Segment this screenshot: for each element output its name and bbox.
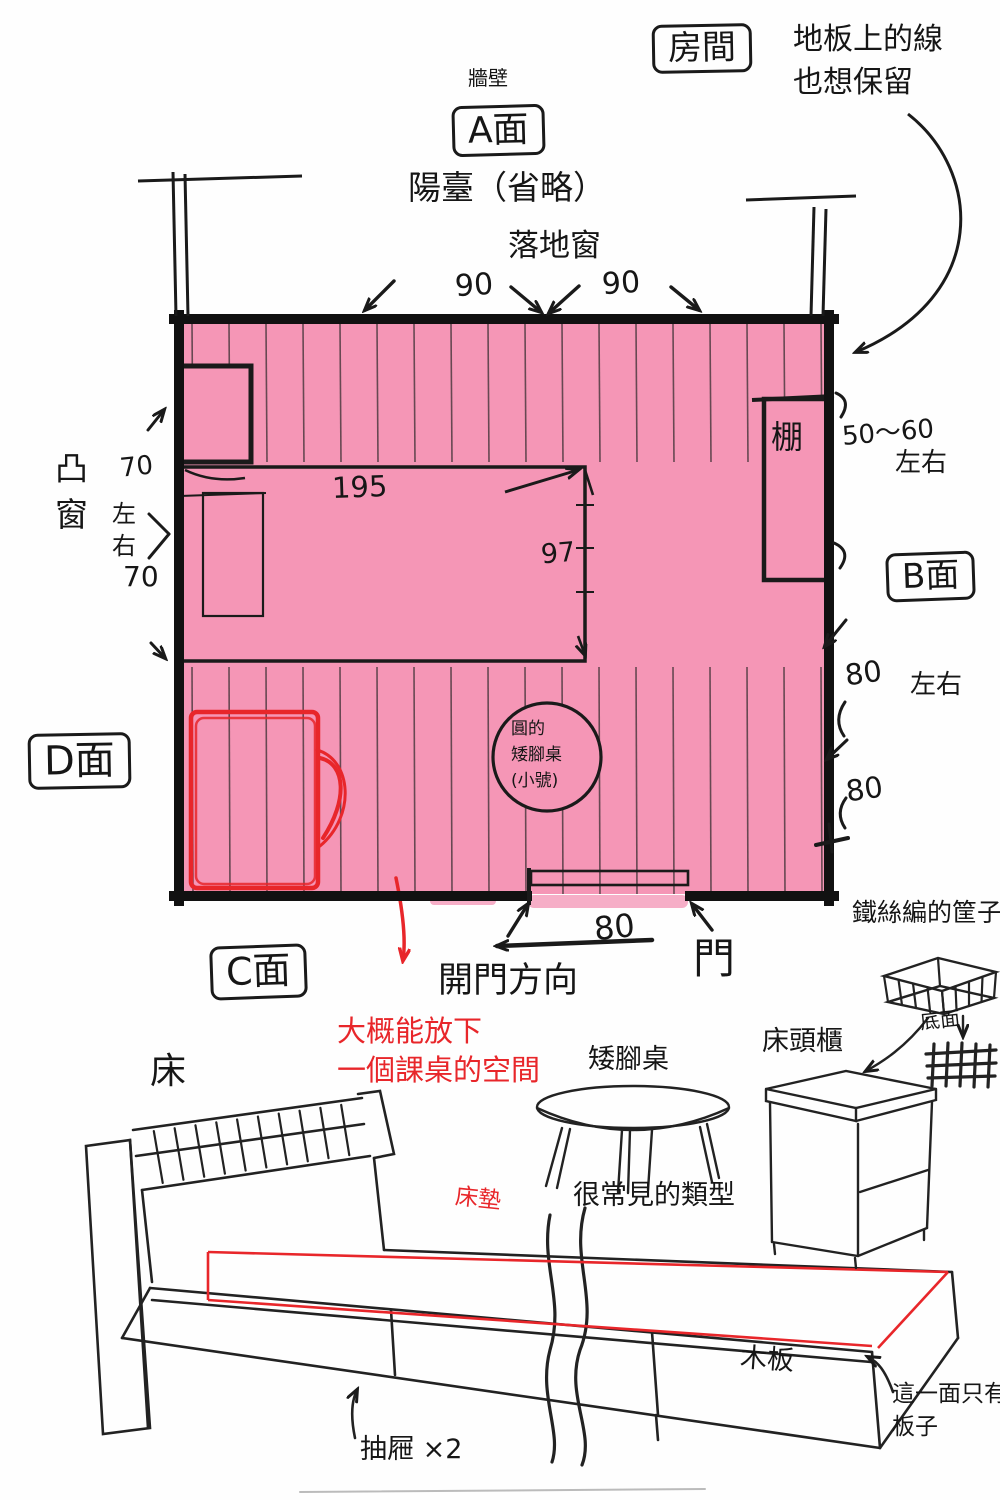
basket-bottom-grid [926, 1043, 996, 1087]
board-note-line2: 板子 [892, 1411, 1000, 1444]
side-b-label: B面 [901, 555, 960, 597]
desk-note: 大概能放下 一個課桌的空間 [337, 1012, 540, 1090]
low-table-sketch [537, 1086, 729, 1193]
floor-note-arrow [856, 114, 961, 352]
bay-lr-label: 左右 [112, 498, 140, 562]
side-c-label: C面 [225, 948, 291, 994]
window-dimension-marks [365, 281, 699, 313]
basket-bottom-label: 底面 [919, 1006, 961, 1034]
board-label: 木板 [739, 1342, 795, 1378]
balcony-label: 陽臺（省略） [408, 168, 606, 208]
b-lr-label: 左右 [910, 670, 962, 701]
nightstand-label: 床頭櫃 [762, 1026, 843, 1058]
b-dim-1: 80 [843, 654, 884, 694]
side-a-label: A面 [467, 109, 529, 152]
window-dim-2: 90 [601, 265, 642, 304]
side-a-box: A面 [451, 104, 545, 158]
basket-label: 鐵絲編的筐子 [852, 898, 1000, 928]
desk-note-line2: 一個課桌的空間 [337, 1051, 540, 1090]
window-dim-1: 90 [454, 267, 495, 306]
side-d-label: D面 [44, 737, 116, 784]
bed-width-dim: 195 [331, 469, 388, 506]
mattress-label: 床墊 [454, 1184, 503, 1216]
hand-drawn-room-plan: 房間 地板上的線 也想保留 牆壁 A面 陽臺（省略） 落地窗 90 90 凸窗 … [0, 0, 1000, 1500]
shelf-label: 棚 [771, 418, 803, 456]
shelf-lr-label: 左右 [895, 448, 947, 479]
table-note-label: 很常見的類型 [573, 1180, 735, 1212]
plan-closet-rect [181, 366, 251, 462]
bay-dim-2: 70 [123, 560, 159, 594]
bed-sketch [86, 1091, 958, 1492]
floor-note-line1: 地板上的線 [793, 18, 943, 61]
door-pink-spill [528, 895, 688, 908]
low-table-label: 矮腳桌 [588, 1044, 669, 1076]
round-table-line2: 矮腳桌 [511, 742, 562, 768]
door-label: 門 [693, 934, 735, 984]
board-note-line1: 這一面只有 [892, 1378, 1000, 1411]
nightstand-sketch [766, 1071, 936, 1268]
floor-plan-drawing [0, 0, 1000, 1500]
bay-dim-1: 70 [118, 450, 154, 484]
floor-note: 地板上的線 也想保留 [793, 18, 943, 104]
desk-note-line1: 大概能放下 [337, 1012, 540, 1051]
basket-to-nightstand-arrow [866, 1018, 928, 1071]
french-window-label: 落地窗 [508, 228, 601, 265]
b-dim-2: 80 [844, 770, 885, 810]
room-title-box: 房間 [652, 23, 753, 74]
bay-window-marks [148, 410, 169, 658]
door-direction-label: 開門方向 [438, 960, 578, 1002]
bed-label: 床 [150, 1050, 186, 1093]
room-title: 房間 [668, 27, 737, 68]
drawers-arrow [352, 1390, 357, 1438]
board-note: 這一面只有 板子 [892, 1378, 1000, 1444]
bed-depth-dim: 97 [540, 537, 577, 572]
bay-window-label: 凸窗 [55, 446, 93, 538]
round-table-line3: (小號) [511, 768, 562, 794]
side-b-box: B面 [885, 550, 976, 602]
round-table-note: 圓的 矮腳桌 (小號) [511, 716, 562, 794]
side-d-box: D面 [28, 732, 132, 790]
drawers-label: 抽屜 ×2 [360, 1434, 462, 1466]
round-table-line1: 圓的 [511, 716, 562, 742]
wall-label: 牆壁 [468, 66, 508, 90]
door-dim: 80 [592, 906, 637, 948]
floor-note-line2: 也想保留 [793, 61, 943, 104]
side-c-box: C面 [209, 943, 307, 1000]
